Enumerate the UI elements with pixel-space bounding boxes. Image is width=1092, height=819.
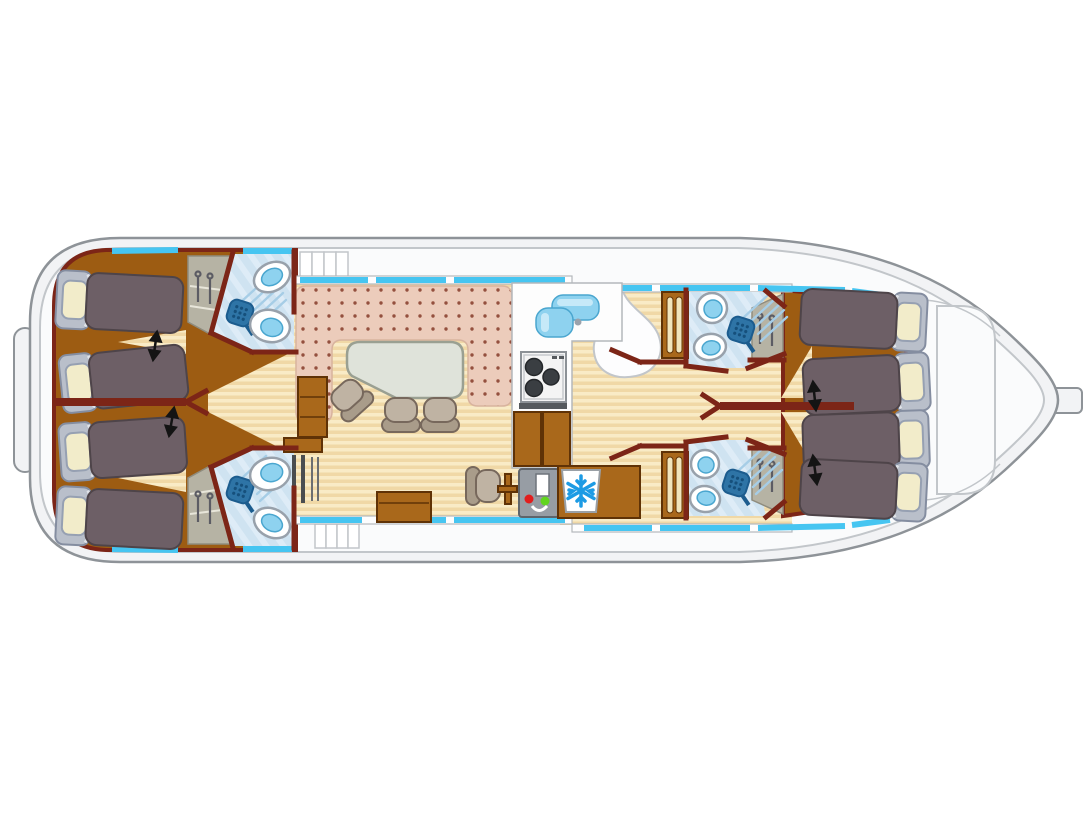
foredeck-panel xyxy=(937,306,995,494)
boat-floor-plan-page xyxy=(0,0,1092,819)
burner-icon xyxy=(526,380,543,397)
hob xyxy=(521,352,566,402)
shower-room-mid-bottom xyxy=(688,440,783,516)
companionway-steps-top xyxy=(300,252,348,277)
berth xyxy=(799,457,928,522)
berth xyxy=(55,486,184,551)
red-indicator-icon xyxy=(525,495,534,504)
galley-cabinet xyxy=(543,412,570,466)
washbasin xyxy=(697,293,727,323)
salon-chair xyxy=(421,398,459,432)
storage-chest xyxy=(377,492,431,522)
washbasin xyxy=(691,450,719,478)
boat-floor-plan xyxy=(0,0,1092,819)
helm-seat xyxy=(466,467,500,505)
fridge-unit xyxy=(558,466,640,518)
faucet xyxy=(575,319,582,326)
burner-icon xyxy=(543,369,559,385)
burner-icon xyxy=(526,359,543,376)
instrument-screen xyxy=(536,474,549,496)
helm-console xyxy=(519,469,559,517)
companionway-steps-bottom xyxy=(315,524,359,548)
salon-chair xyxy=(382,398,420,432)
galley-cabinet xyxy=(514,412,541,466)
berth xyxy=(55,270,184,335)
berth xyxy=(799,287,928,352)
steering-wheel-spoke xyxy=(498,486,517,492)
salon-sideboard xyxy=(298,377,327,437)
oven xyxy=(519,403,567,409)
green-indicator-icon xyxy=(541,497,550,506)
